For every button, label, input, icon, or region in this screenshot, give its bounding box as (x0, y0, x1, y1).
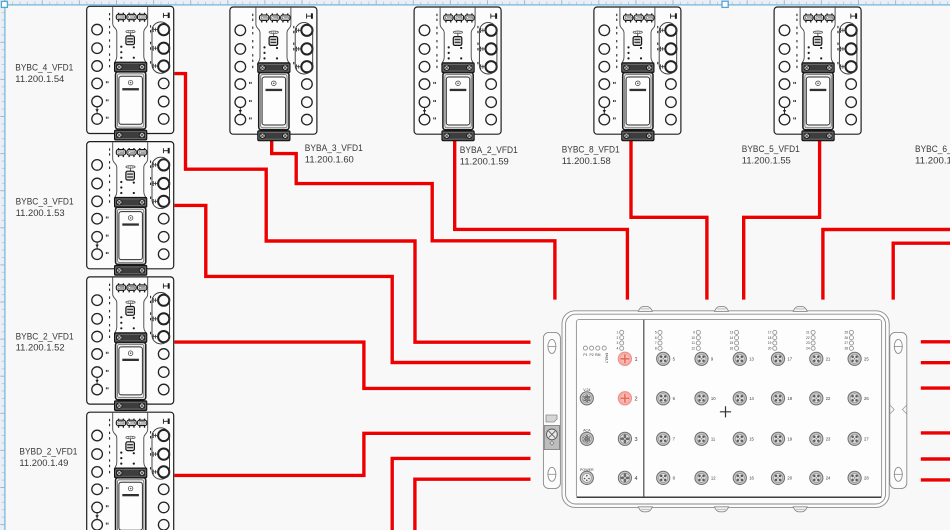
svg-text:POWER: POWER (580, 468, 594, 472)
svg-text:BYBC_5_VFD1: BYBC_5_VFD1 (742, 144, 800, 155)
svg-text:12: 12 (711, 475, 716, 480)
svg-text:1: 1 (635, 357, 638, 363)
svg-text:BYBC_6_VFD1: BYBC_6_VFD1 (915, 144, 950, 155)
svg-text:19: 19 (768, 341, 772, 345)
svg-text:11.200.1.55: 11.200.1.55 (742, 155, 791, 166)
svg-text:27: 27 (864, 436, 869, 441)
svg-text:22: 22 (826, 396, 831, 401)
svg-text:23: 23 (826, 436, 831, 441)
svg-text:BYBC_8_VFD1: BYBC_8_VFD1 (562, 145, 620, 156)
svg-text:1: 1 (617, 331, 619, 335)
svg-text:11: 11 (711, 436, 716, 441)
svg-text:16: 16 (730, 347, 734, 351)
svg-text:17: 17 (787, 356, 792, 361)
svg-text:26: 26 (864, 396, 869, 401)
svg-text:3: 3 (617, 341, 619, 345)
svg-text:14: 14 (749, 396, 754, 401)
svg-text:13: 13 (749, 356, 754, 361)
svg-text:12: 12 (691, 347, 695, 351)
svg-text:BYBC_3_VFD1: BYBC_3_VFD1 (16, 196, 74, 207)
svg-text:11.200.1.52: 11.200.1.52 (16, 342, 65, 353)
svg-text:20: 20 (787, 475, 792, 480)
svg-text:ACA: ACA (583, 429, 591, 433)
svg-text:P1: P1 (583, 353, 587, 357)
svg-text:BYBC_2_VFD1: BYBC_2_VFD1 (16, 331, 74, 342)
svg-text:19: 19 (787, 436, 792, 441)
svg-text:14: 14 (730, 336, 734, 340)
svg-text:24: 24 (806, 347, 810, 351)
svg-text:BYBA_2_VFD1: BYBA_2_VFD1 (460, 145, 518, 156)
svg-text:RM: RM (595, 353, 600, 357)
svg-text:11.200.1.58: 11.200.1.58 (562, 156, 611, 167)
svg-text:25: 25 (844, 331, 848, 335)
svg-text:5: 5 (655, 331, 657, 335)
svg-text:P2: P2 (590, 353, 594, 357)
svg-text:4: 4 (635, 476, 638, 482)
svg-text:15: 15 (730, 341, 734, 345)
svg-text:18: 18 (768, 336, 772, 340)
svg-text:21: 21 (806, 331, 810, 335)
svg-text:11.200.1.59: 11.200.1.59 (460, 157, 509, 168)
svg-text:4: 4 (617, 347, 619, 351)
svg-text:FAULT: FAULT (604, 353, 608, 363)
svg-text:28: 28 (864, 475, 869, 480)
svg-text:15: 15 (749, 436, 754, 441)
svg-text:V.24: V.24 (583, 388, 590, 392)
svg-text:BYBD_2_VFD1: BYBD_2_VFD1 (19, 447, 77, 458)
svg-text:BYBC_4_VFD1: BYBC_4_VFD1 (15, 62, 73, 73)
svg-text:20: 20 (768, 347, 772, 351)
svg-text:13: 13 (730, 331, 734, 335)
svg-text:2: 2 (635, 396, 638, 402)
svg-text:24: 24 (826, 475, 831, 480)
svg-text:11.200.1.49: 11.200.1.49 (19, 458, 68, 469)
svg-text:27: 27 (844, 341, 848, 345)
svg-text:BYBA_3_VFD1: BYBA_3_VFD1 (305, 143, 363, 154)
svg-text:2: 2 (617, 336, 619, 340)
svg-text:10: 10 (691, 336, 695, 340)
svg-text:17: 17 (768, 331, 772, 335)
svg-text:23: 23 (806, 341, 810, 345)
svg-text:28: 28 (844, 347, 848, 351)
svg-text:7: 7 (655, 341, 657, 345)
svg-text:16: 16 (749, 475, 754, 480)
svg-text:11: 11 (692, 341, 696, 345)
svg-text:26: 26 (844, 336, 848, 340)
svg-text:11.200.1.60: 11.200.1.60 (305, 155, 354, 166)
svg-text:21: 21 (826, 356, 831, 361)
svg-text:6: 6 (655, 336, 657, 340)
svg-text:11.200.1.53: 11.200.1.53 (16, 208, 65, 219)
svg-text:9: 9 (693, 331, 695, 335)
svg-text:11.200.1.5: 11.200.1.5 (915, 155, 950, 166)
svg-text:11.200.1.54: 11.200.1.54 (15, 74, 64, 85)
svg-text:8: 8 (655, 347, 657, 351)
svg-text:18: 18 (787, 396, 792, 401)
svg-text:3: 3 (635, 437, 638, 443)
svg-text:25: 25 (864, 356, 869, 361)
svg-text:10: 10 (711, 396, 716, 401)
svg-text:22: 22 (806, 336, 810, 340)
